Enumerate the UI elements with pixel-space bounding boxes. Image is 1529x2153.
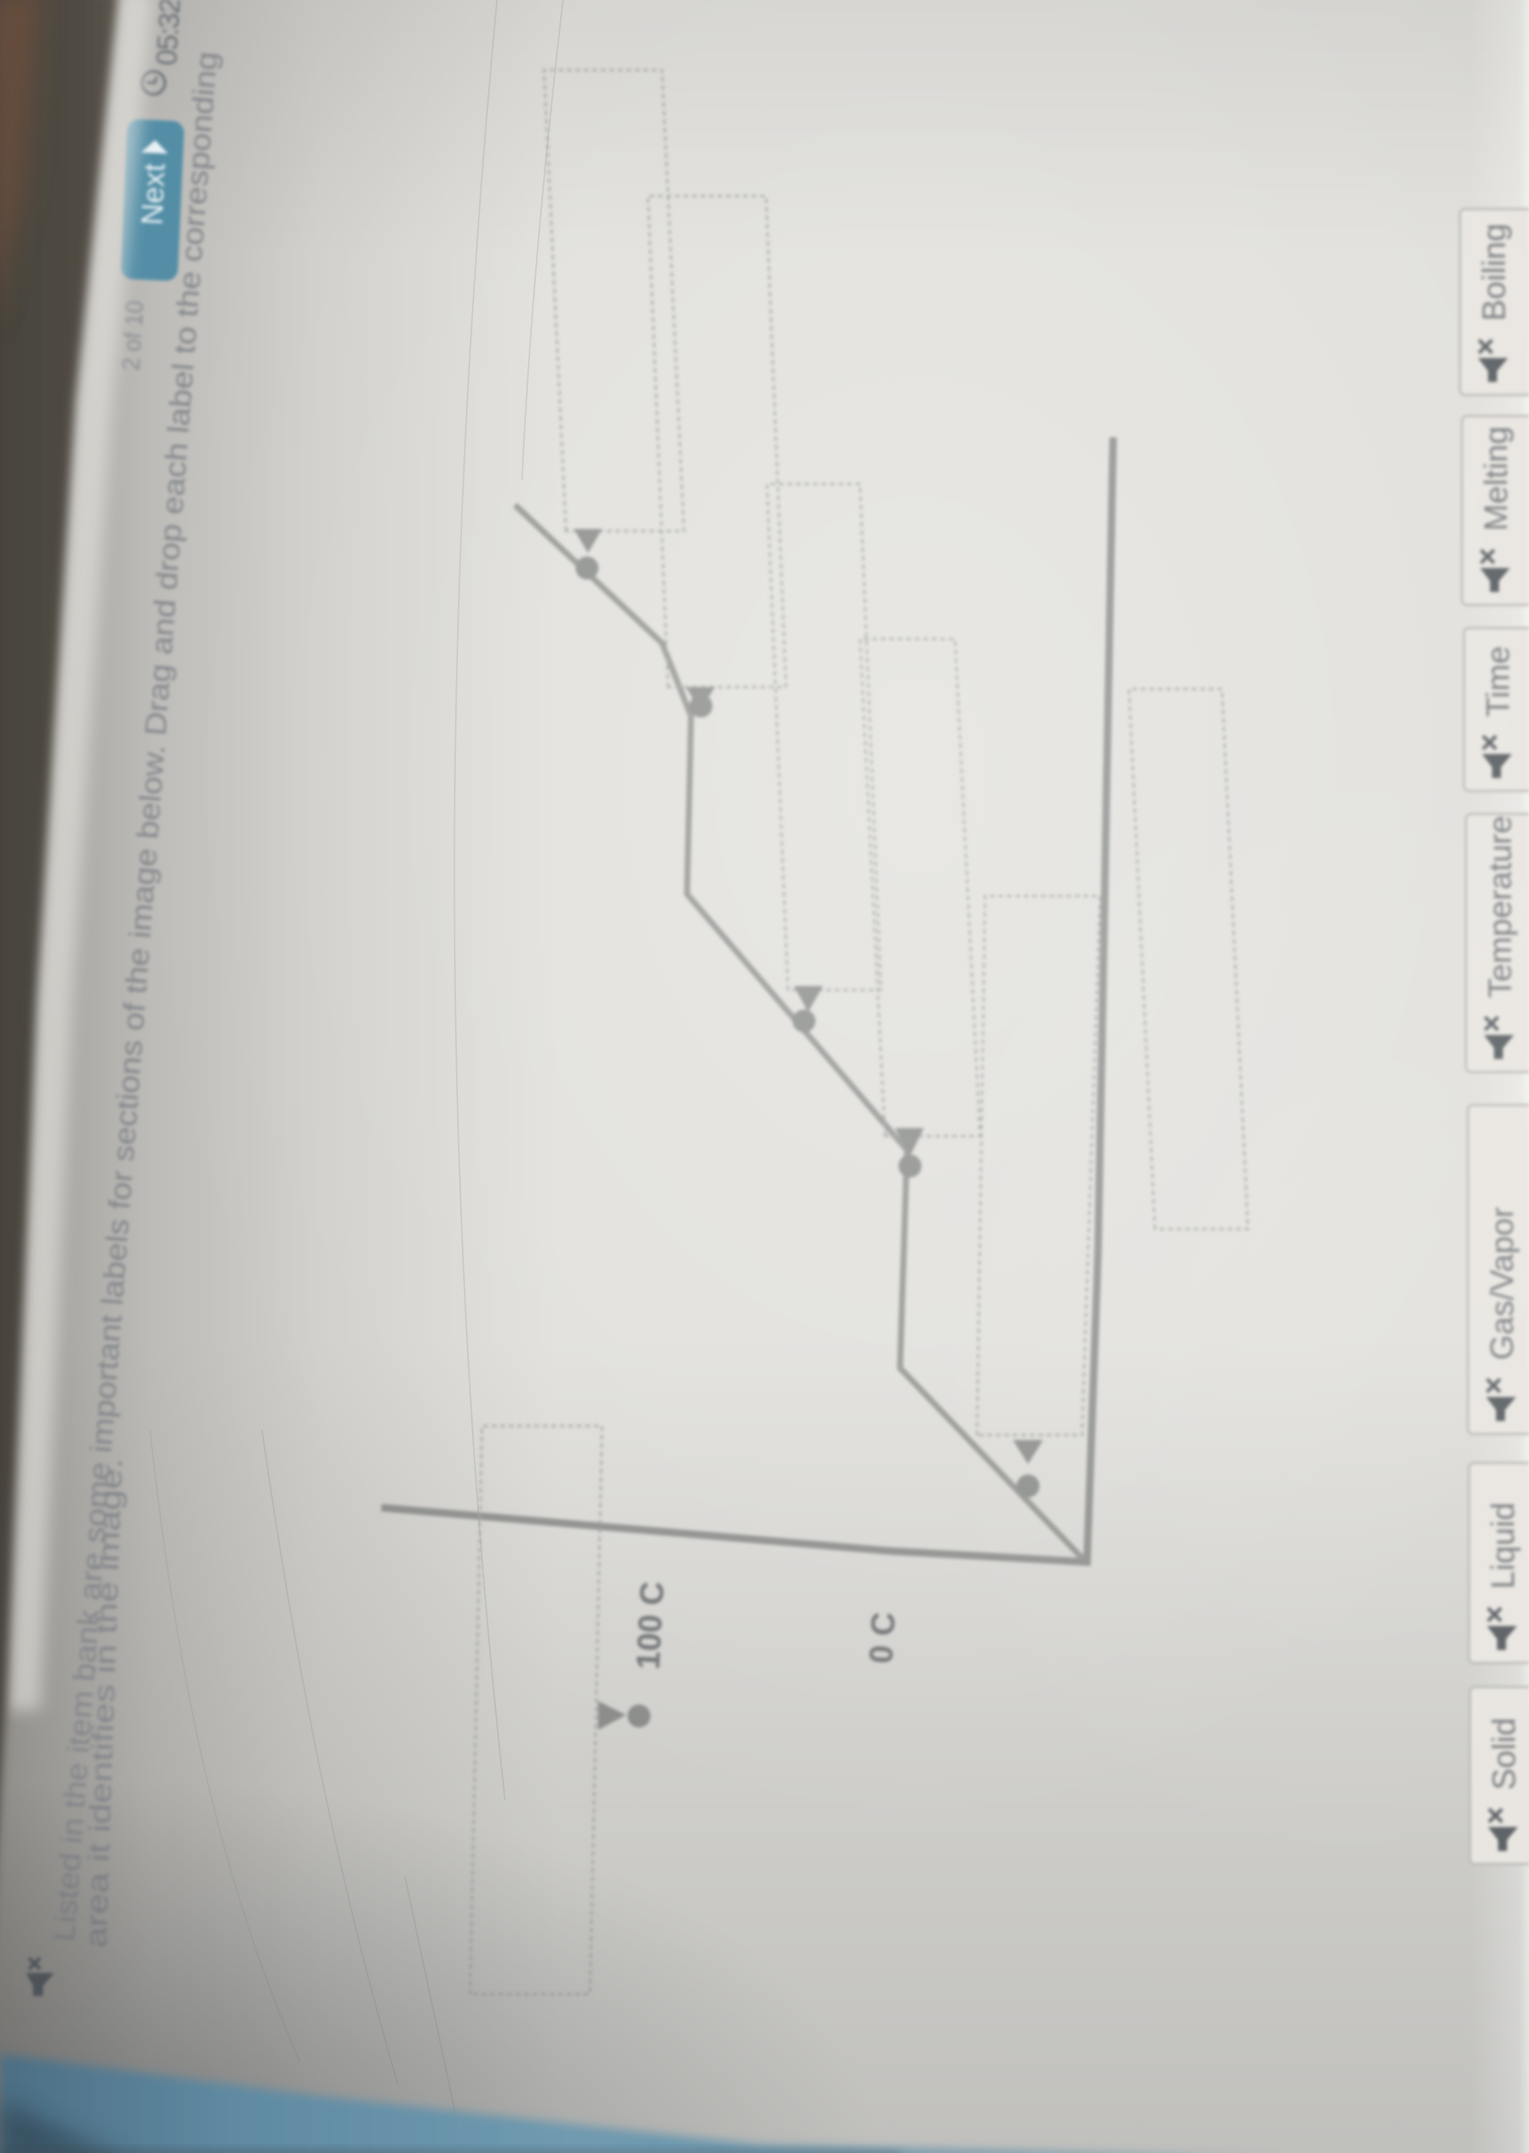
svg-text:Temperature: Temperature xyxy=(1482,816,1518,998)
svg-text:Melting: Melting xyxy=(1478,426,1514,531)
svg-text:Next: Next xyxy=(136,162,172,226)
svg-text:Boiling: Boiling xyxy=(1476,223,1512,321)
svg-text:0 C: 0 C xyxy=(862,1611,902,1664)
svg-text:Time: Time xyxy=(1480,646,1516,717)
svg-text:Liquid: Liquid xyxy=(1485,1502,1521,1589)
svg-text:Solid: Solid xyxy=(1486,1718,1522,1790)
svg-text:05:32: 05:32 xyxy=(151,0,187,66)
svg-text:Gas/Vapor: Gas/Vapor xyxy=(1484,1207,1520,1360)
svg-text:2 of 10: 2 of 10 xyxy=(117,300,149,372)
svg-text:100 C: 100 C xyxy=(629,1580,671,1670)
